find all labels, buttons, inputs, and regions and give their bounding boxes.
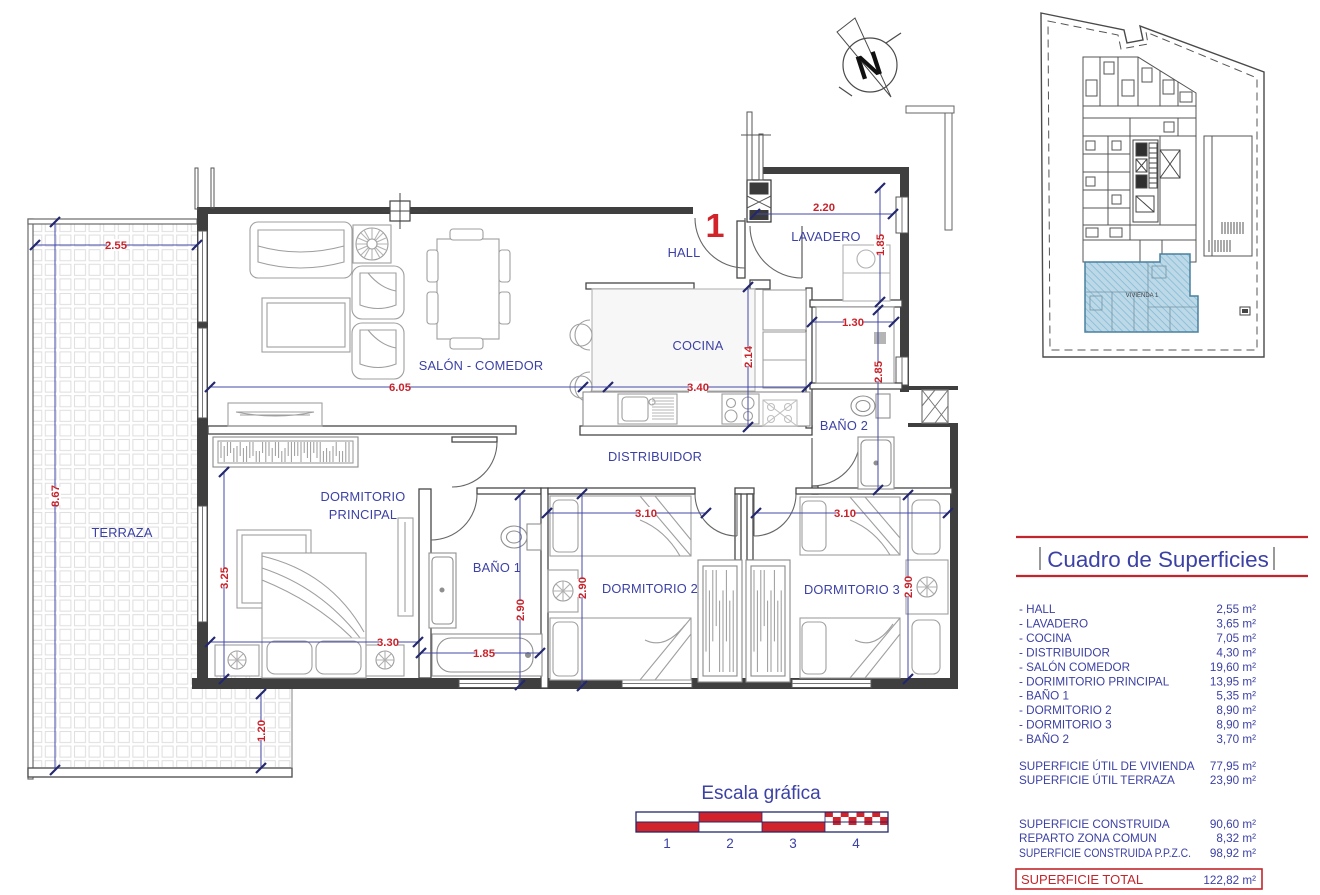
svg-text:- HALL: - HALL	[1019, 603, 1056, 616]
svg-text:13,95 m²: 13,95 m²	[1210, 675, 1256, 688]
svg-text:8.67: 8.67	[50, 485, 62, 507]
svg-text:2.85: 2.85	[873, 361, 885, 383]
svg-text:77,95 m²: 77,95 m²	[1210, 760, 1256, 773]
svg-text:5,35 m²: 5,35 m²	[1216, 690, 1256, 703]
svg-text:8,90 m²: 8,90 m²	[1216, 704, 1256, 717]
svg-text:1.20: 1.20	[256, 720, 268, 742]
svg-text:23,90 m²: 23,90 m²	[1210, 774, 1256, 787]
svg-text:8,32 m²: 8,32 m²	[1216, 832, 1256, 845]
svg-text:- DORMITORIO 2: - DORMITORIO 2	[1019, 704, 1112, 717]
svg-text:SUPERFICIE TOTAL: SUPERFICIE TOTAL	[1021, 872, 1143, 887]
svg-text:HALL: HALL	[668, 245, 701, 260]
svg-text:TERRAZA: TERRAZA	[91, 525, 152, 540]
svg-text:3.30: 3.30	[377, 637, 399, 649]
svg-text:- LAVADERO: - LAVADERO	[1019, 618, 1088, 631]
svg-text:VIVIENDA 1: VIVIENDA 1	[1126, 293, 1159, 299]
svg-text:BAÑO 1: BAÑO 1	[473, 560, 521, 575]
svg-text:2.20: 2.20	[813, 202, 835, 214]
svg-text:7,05 m²: 7,05 m²	[1216, 632, 1256, 645]
svg-text:3.10: 3.10	[635, 508, 657, 520]
svg-text:8,90 m²: 8,90 m²	[1216, 719, 1256, 732]
svg-text:BAÑO 2: BAÑO 2	[820, 418, 868, 433]
svg-text:122,82 m²: 122,82 m²	[1203, 874, 1256, 887]
svg-text:SUPERFICIE ÚTIL DE VIVIENDA: SUPERFICIE ÚTIL DE VIVIENDA	[1019, 760, 1195, 773]
svg-text:LAVADERO: LAVADERO	[791, 229, 860, 244]
svg-text:3.40: 3.40	[687, 382, 709, 394]
svg-text:1: 1	[663, 836, 671, 851]
svg-text:DORMITORIO 2: DORMITORIO 2	[602, 581, 698, 596]
svg-text:- DISTRIBUIDOR: - DISTRIBUIDOR	[1019, 646, 1110, 659]
svg-text:2.90: 2.90	[577, 577, 589, 599]
svg-text:- COCINA: - COCINA	[1019, 632, 1072, 645]
svg-text:3.10: 3.10	[834, 508, 856, 520]
svg-text:3: 3	[789, 836, 797, 851]
svg-text:DORMITORIO 3: DORMITORIO 3	[804, 582, 900, 597]
svg-text:DISTRIBUIDOR: DISTRIBUIDOR	[608, 449, 702, 464]
svg-text:2: 2	[726, 836, 734, 851]
svg-text:SUPERFICIE ÚTIL TERRAZA: SUPERFICIE ÚTIL TERRAZA	[1019, 774, 1175, 787]
svg-text:1: 1	[706, 207, 725, 244]
svg-text:3,65 m²: 3,65 m²	[1216, 618, 1256, 631]
svg-text:3.25: 3.25	[219, 567, 231, 589]
svg-text:2.90: 2.90	[515, 599, 527, 621]
svg-text:4,30 m²: 4,30 m²	[1216, 646, 1256, 659]
svg-text:REPARTO ZONA COMUN: REPARTO ZONA COMUN	[1019, 832, 1157, 845]
svg-text:COCINA: COCINA	[673, 338, 724, 353]
svg-text:DORMITORIO: DORMITORIO	[321, 489, 406, 504]
svg-text:SALÓN - COMEDOR: SALÓN - COMEDOR	[419, 358, 544, 373]
svg-text:Escala gráfica: Escala gráfica	[701, 783, 821, 804]
svg-text:Cuadro de Superficies: Cuadro de Superficies	[1047, 547, 1269, 572]
svg-text:SUPERFICIE CONSTRUIDA P.P.Z.C.: SUPERFICIE CONSTRUIDA P.P.Z.C.	[1019, 847, 1191, 860]
svg-text:6.05: 6.05	[389, 382, 411, 394]
svg-text:2.14: 2.14	[743, 345, 755, 368]
svg-text:1.85: 1.85	[875, 234, 887, 256]
svg-text:98,92 m²: 98,92 m²	[1210, 847, 1256, 860]
svg-text:2.55: 2.55	[105, 240, 127, 252]
svg-text:- BAÑO 1: - BAÑO 1	[1019, 690, 1069, 703]
svg-text:- SALÓN COMEDOR: - SALÓN COMEDOR	[1019, 661, 1130, 674]
svg-text:1.30: 1.30	[842, 317, 864, 329]
svg-text:- BAÑO 2: - BAÑO 2	[1019, 733, 1069, 746]
svg-text:1.85: 1.85	[473, 648, 495, 660]
svg-text:90,60 m²: 90,60 m²	[1210, 818, 1256, 831]
svg-text:- DORIMITORIO PRINCIPAL: - DORIMITORIO PRINCIPAL	[1019, 675, 1170, 688]
svg-text:4: 4	[852, 836, 860, 851]
svg-text:- DORMITORIO 3: - DORMITORIO 3	[1019, 719, 1112, 732]
svg-text:19,60 m²: 19,60 m²	[1210, 661, 1256, 674]
svg-text:PRINCIPAL: PRINCIPAL	[329, 507, 397, 522]
svg-text:2,55 m²: 2,55 m²	[1216, 603, 1256, 616]
svg-text:3,70 m²: 3,70 m²	[1216, 733, 1256, 746]
svg-text:2.90: 2.90	[903, 576, 915, 598]
svg-text:SUPERFICIE CONSTRUIDA: SUPERFICIE CONSTRUIDA	[1019, 818, 1170, 831]
